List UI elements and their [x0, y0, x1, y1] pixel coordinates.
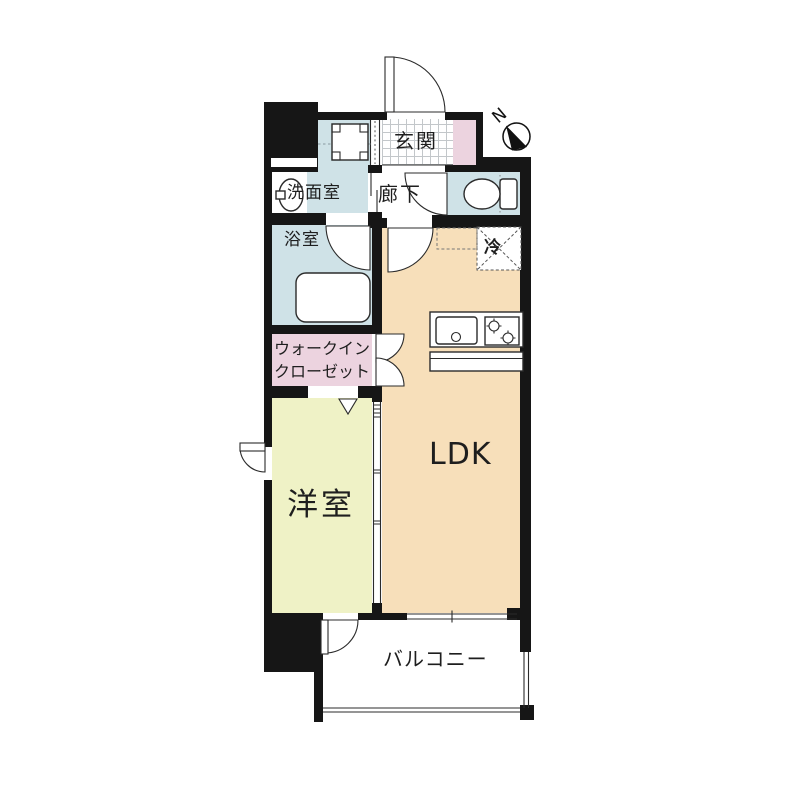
- closet-door-bottom-icon: [376, 358, 404, 386]
- hallway-label: 廊下: [378, 183, 422, 205]
- walk-in-closet-label: ウォークイン クローゼット: [274, 337, 370, 383]
- wic-label-line1: ウォークイン: [274, 337, 370, 360]
- bathroom-label: 浴室: [284, 231, 320, 250]
- front-door-leaf-icon: [385, 57, 394, 112]
- refrigerator-box-icon: [437, 227, 521, 270]
- sliding-door-partition-icon: [372, 402, 382, 603]
- balcony-door-leaf-icon: [321, 620, 328, 654]
- plan-overlay: N: [0, 0, 800, 800]
- bath-door-swing-icon: [326, 226, 370, 270]
- north-compass-icon: N: [488, 104, 530, 150]
- ldk-door-swing-icon: [388, 228, 433, 272]
- washroom-label: 洗面室: [287, 184, 341, 203]
- entrance-divider-icon: [370, 120, 380, 165]
- balcony-door-swing-icon: [325, 620, 358, 653]
- floor-plan: N 玄関 洗面室 廊下 浴室 冷 ウォークイン クローゼット LDK 洋室 バル…: [0, 0, 800, 800]
- front-door-swing-icon: [390, 57, 445, 112]
- doorway-triangle-marker: [339, 399, 357, 414]
- ldk-label: LDK: [429, 438, 492, 471]
- compass-n-label: N: [488, 104, 511, 127]
- west-door-leaf-icon: [240, 443, 265, 451]
- wic-label-line2: クローゼット: [274, 360, 370, 383]
- balcony-label: バルコニー: [383, 648, 488, 670]
- washing-machine-icon: [318, 124, 372, 160]
- toilet-icon: [464, 175, 517, 213]
- kitchen-sink-icon: [436, 317, 477, 344]
- stove-icon: [485, 317, 519, 345]
- bathtub-icon: [296, 273, 370, 322]
- refrigerator-label: 冷: [484, 239, 501, 258]
- bedroom-label: 洋室: [287, 488, 355, 522]
- balcony-window-icon: [407, 611, 517, 623]
- kitchen-counter-icon: [430, 312, 523, 371]
- entrance-label: 玄関: [394, 130, 438, 152]
